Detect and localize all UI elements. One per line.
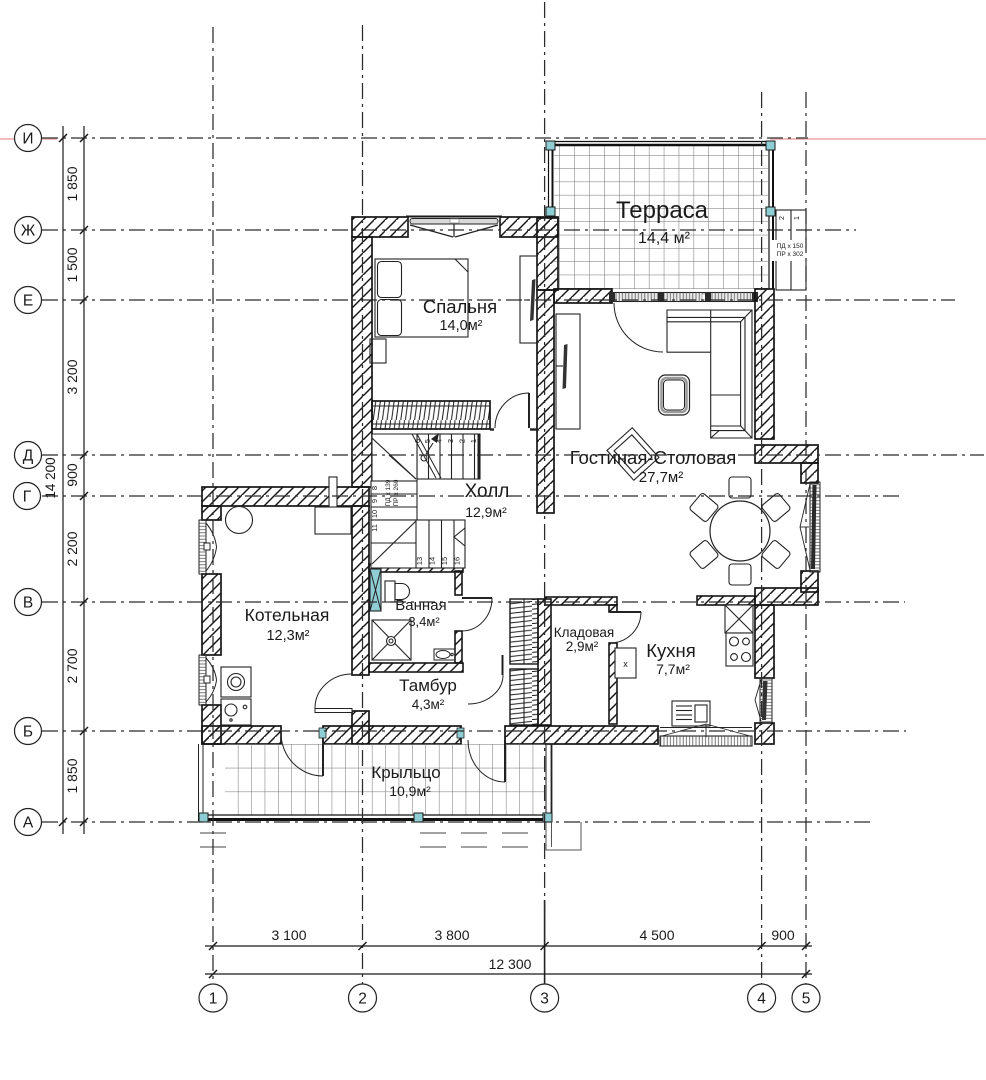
svg-text:x: x <box>623 659 628 669</box>
svg-text:Д: Д <box>23 448 34 465</box>
svg-text:14: 14 <box>428 557 437 565</box>
svg-text:1 850: 1 850 <box>64 758 80 793</box>
svg-text:ПР х 260: ПР х 260 <box>393 479 400 506</box>
svg-text:Кладовая: Кладовая <box>554 625 614 640</box>
svg-text:3: 3 <box>540 991 549 1008</box>
svg-text:Б: Б <box>23 724 33 741</box>
svg-text:Терраса: Терраса <box>616 197 709 224</box>
svg-text:16: 16 <box>453 557 462 565</box>
svg-text:Г: Г <box>23 489 32 506</box>
svg-text:5: 5 <box>802 991 811 1008</box>
svg-text:14,4 м²: 14,4 м² <box>638 230 691 247</box>
svg-text:3: 3 <box>446 439 455 443</box>
svg-text:900: 900 <box>64 463 80 487</box>
svg-text:И: И <box>22 131 33 148</box>
svg-text:1 500: 1 500 <box>64 247 80 282</box>
svg-text:12,9м²: 12,9м² <box>465 504 507 520</box>
svg-text:4: 4 <box>435 439 444 443</box>
svg-text:Тамбур: Тамбур <box>399 676 457 695</box>
svg-text:А: А <box>23 815 34 832</box>
svg-text:2 200: 2 200 <box>64 531 80 566</box>
svg-text:13: 13 <box>415 557 424 565</box>
svg-text:12,3м²: 12,3м² <box>266 628 309 644</box>
svg-text:14 200: 14 200 <box>43 457 58 498</box>
svg-text:8: 8 <box>370 486 379 490</box>
svg-text:900: 900 <box>771 927 795 943</box>
svg-text:4 500: 4 500 <box>639 927 674 943</box>
svg-text:1: 1 <box>209 991 218 1008</box>
svg-text:2: 2 <box>779 216 786 220</box>
svg-text:2: 2 <box>458 439 467 443</box>
svg-text:2,9м²: 2,9м² <box>566 639 599 654</box>
svg-text:1 850: 1 850 <box>64 166 80 201</box>
svg-text:27,7м²: 27,7м² <box>639 469 684 486</box>
svg-text:15: 15 <box>440 557 449 565</box>
svg-text:12 300: 12 300 <box>489 956 532 972</box>
svg-text:2: 2 <box>358 991 367 1008</box>
svg-text:Кухня: Кухня <box>646 640 696 661</box>
svg-text:4: 4 <box>757 991 766 1008</box>
svg-text:Котельная: Котельная <box>245 605 330 625</box>
svg-text:ПД х 150: ПД х 150 <box>777 243 804 250</box>
svg-text:ПР х 302: ПР х 302 <box>777 251 804 258</box>
svg-text:Е: Е <box>23 293 33 310</box>
svg-text:3 200: 3 200 <box>64 359 80 394</box>
svg-text:Гостиная-Столовая: Гостиная-Столовая <box>570 447 737 468</box>
svg-text:ПД х 139: ПД х 139 <box>385 479 392 506</box>
svg-text:11: 11 <box>370 524 379 532</box>
svg-text:Холл: Холл <box>465 481 510 502</box>
svg-text:10: 10 <box>370 510 379 518</box>
svg-text:3 800: 3 800 <box>434 927 469 943</box>
svg-text:14,0м²: 14,0м² <box>439 318 482 334</box>
svg-text:2 700: 2 700 <box>64 648 80 683</box>
svg-text:Ж: Ж <box>21 223 36 240</box>
svg-text:3 100: 3 100 <box>271 927 306 943</box>
svg-text:Крыльцо: Крыльцо <box>371 763 440 782</box>
svg-text:7,7м²: 7,7м² <box>656 661 690 677</box>
svg-text:6: 6 <box>413 439 422 443</box>
svg-text:5: 5 <box>423 439 432 443</box>
svg-text:В: В <box>23 595 33 612</box>
svg-text:4,3м²: 4,3м² <box>412 697 445 712</box>
svg-text:1: 1 <box>794 216 801 220</box>
svg-text:Ванная: Ванная <box>395 597 446 614</box>
svg-text:9: 9 <box>370 499 379 503</box>
svg-text:1: 1 <box>469 439 478 443</box>
svg-text:Спальня: Спальня <box>423 296 497 317</box>
svg-text:10,9м²: 10,9м² <box>389 783 431 799</box>
svg-text:3,4м²: 3,4м² <box>408 614 440 629</box>
